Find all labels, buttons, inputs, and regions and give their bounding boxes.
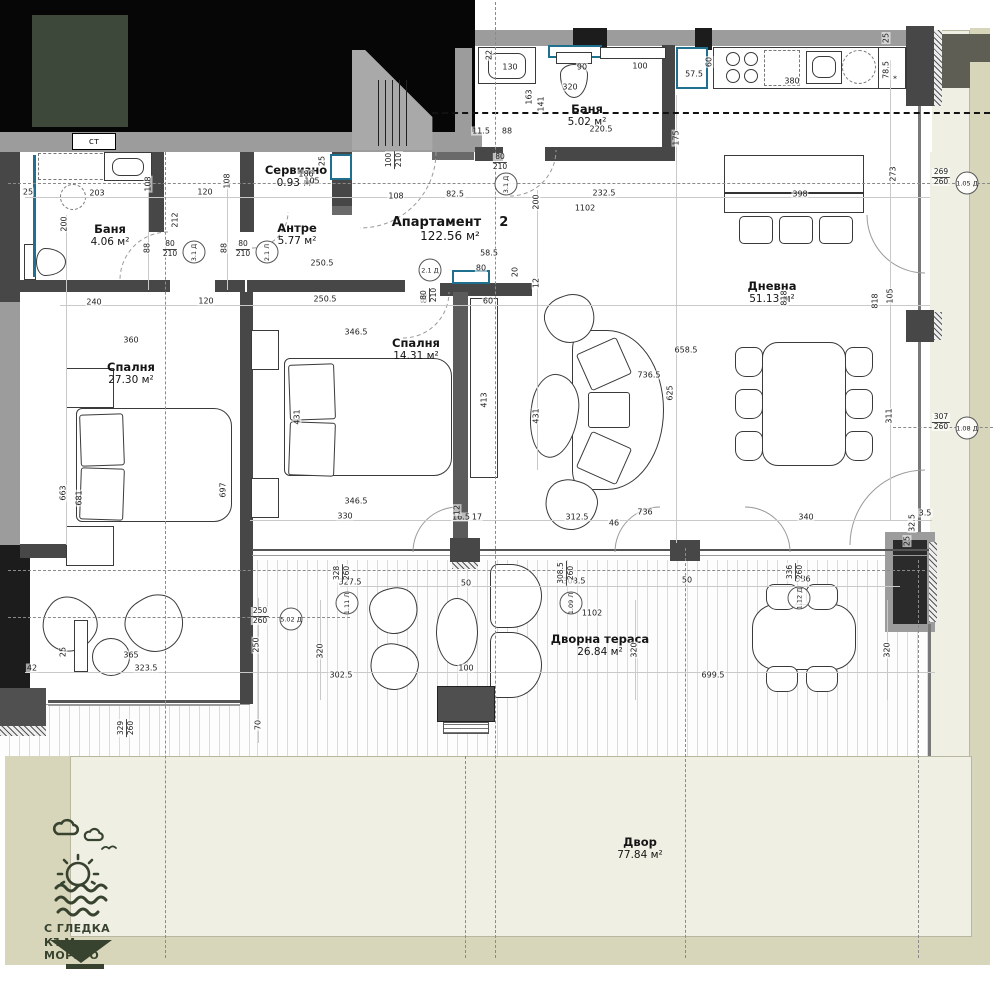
dimension-346.5: 346.5 (344, 497, 369, 506)
dimension-818: 818 (871, 292, 880, 309)
dimension-311: 311 (885, 407, 894, 424)
chair (845, 431, 873, 461)
dimension-141: 141 (537, 95, 546, 112)
dimension-25: 25 (882, 32, 891, 44)
dimension-line (25, 672, 935, 673)
dimension-320: 320 (630, 641, 639, 658)
room-area: 27.30 м² (107, 374, 155, 387)
dimension-323.5: 323.5 (134, 664, 159, 673)
dimension-818: 818 (780, 289, 789, 306)
dimension-200: 200 (60, 215, 69, 232)
hob-burner (744, 69, 758, 83)
pillow (79, 413, 125, 467)
door-marker-3.1Д: 3.1 Д (183, 241, 206, 264)
yard-step (938, 34, 990, 62)
room-label-bed-1: Спалня27.30 м² (107, 360, 155, 387)
stack-bottom: 260 (934, 423, 948, 432)
door-marker-text: 5.02 Д (280, 615, 302, 623)
stairs-icon (378, 80, 410, 146)
stack-bottom: 260 (934, 178, 948, 187)
dimension-681: 681 (75, 489, 84, 506)
dimension-232.5: 232.5 (592, 189, 617, 198)
shaft-label: ст (72, 133, 116, 150)
dimension-90: 90 (576, 63, 588, 72)
dimension-3.5: 3.5 (918, 509, 933, 518)
dimension-70: 70 (254, 719, 263, 731)
insulation-hatch (0, 726, 46, 736)
dimension-220.5: 220.5 (589, 125, 614, 134)
washing-machine (676, 47, 708, 89)
stack-bottom: 260 (567, 566, 576, 580)
terrace-column (450, 538, 480, 562)
bbq (437, 686, 495, 722)
stack-308.5-260: 308.5260 (557, 560, 575, 585)
shelf (600, 47, 666, 59)
room-name: Двор (617, 835, 663, 849)
chair (735, 347, 763, 377)
door-marker-1.05Д: 1.05 Д (956, 172, 979, 195)
dimension-320: 320 (561, 83, 578, 92)
dimension-431: 431 (293, 408, 302, 425)
dimension-120: 120 (197, 297, 214, 306)
dimension-46: 46 (608, 519, 620, 528)
terrace-glazing (252, 549, 930, 551)
dimension-105: 105 (886, 287, 895, 304)
room-label-unit: Апартамент 2122.56 м² (392, 216, 509, 243)
dimension-78.5: 78.5 (882, 60, 891, 80)
door-marker-1.12Д: 1.12 Д (788, 587, 811, 610)
door-marker-text: 1.11 Л (343, 592, 351, 613)
dimension-413: 413 (480, 391, 489, 408)
dimension-250.5: 250.5 (310, 259, 335, 268)
axis-line (495, 2, 496, 958)
service-wall (240, 152, 254, 232)
terrace-dining-table (752, 604, 856, 670)
dimension-736.5: 736.5 (637, 371, 662, 380)
dimension-88: 88 (501, 127, 513, 136)
dimension-57.5: 57.5 (684, 70, 704, 79)
room-name: Спалня (392, 336, 440, 350)
stack-100-210: 100210 (385, 151, 403, 169)
room-area: 14.31 м² (392, 350, 440, 363)
dimension-11.5: 11.5 (471, 127, 491, 136)
window-glazing (918, 106, 921, 312)
door-marker-text: 1.12 Д (795, 587, 803, 609)
dimension-1102: 1102 (574, 204, 596, 213)
dimension-340: 340 (797, 513, 814, 522)
shelf (74, 620, 88, 672)
dimension-50: 50 (681, 576, 693, 585)
door-marker-text: 1.08 Д (956, 424, 978, 432)
bath-counter (38, 153, 108, 180)
room-name: Антре (277, 221, 317, 235)
logo-text-line1: С ГЛЕДКА (36, 922, 132, 936)
chair (735, 389, 763, 419)
terrace-glazing (252, 555, 930, 556)
dimension-625: 625 (666, 384, 675, 401)
door-marker-text: 2.1 Д (421, 266, 438, 274)
dimension-431: 431 (532, 407, 541, 424)
dimension-60: 60 (705, 56, 714, 68)
dimension-380: 380 (783, 77, 800, 86)
dimension-line (537, 190, 538, 470)
floor-plan: ст Баня4.06 м²Сервизно0.93 м²Антре5.77 м… (0, 0, 1000, 1000)
hob-burner (726, 52, 740, 66)
door-marker-3.1Д: 3.1 Д (495, 173, 518, 196)
dimension-108: 108 (387, 192, 404, 201)
dimension-32.5: 32.5 (908, 513, 917, 533)
chair (735, 431, 763, 461)
sofa-cushion (588, 392, 630, 428)
dimension-736: 736 (636, 508, 653, 517)
left-wall (0, 152, 20, 302)
stack-bottom: 260 (253, 617, 267, 626)
dimension-*: * (892, 75, 898, 84)
dimension-58.5: 58.5 (479, 249, 499, 258)
door-marker-text: 1.05 Д (956, 179, 978, 187)
dimension-108: 108 (223, 172, 232, 189)
dimension-25: 25 (318, 155, 327, 167)
stack-bottom: 210 (395, 153, 404, 167)
dimension-60: 60 (482, 297, 494, 306)
bedroom1-window (48, 700, 240, 703)
pillow (288, 421, 336, 477)
bar-stool (779, 216, 813, 244)
stack-80-210: 80210 (493, 153, 507, 171)
service-threshold (332, 206, 352, 215)
dimension-25: 25 (59, 646, 68, 658)
dimension-80: 80 (475, 264, 487, 273)
chair (845, 347, 873, 377)
yard-border-right (970, 28, 990, 956)
cover-rectangle (32, 15, 128, 127)
left-wall (0, 302, 20, 545)
corner-column (906, 26, 934, 106)
door-marker-1.11Л: 1.11 Л (336, 592, 359, 615)
door-marker-1.08Д: 1.08 Д (956, 417, 979, 440)
room-area: 77.84 м² (617, 849, 663, 862)
logo-arrow-icon (50, 940, 112, 963)
dimension-105: 105 (303, 177, 320, 186)
dimension-12: 12 (532, 277, 541, 289)
dimension-12: 12 (453, 504, 462, 516)
yard-bottom (70, 756, 972, 937)
stack-336-260: 336260 (786, 563, 804, 581)
door-marker-2.1Д: 2.1 Д (419, 259, 442, 282)
dimension-658.5: 658.5 (674, 346, 699, 355)
door-marker-text: 3.1 Д (502, 175, 510, 192)
room-label-yard: Двор77.84 м² (617, 835, 663, 862)
dimension-108: 108 (144, 175, 153, 192)
room-label-living: Дневна51.13 м² (748, 279, 797, 306)
dimension-203: 203 (88, 189, 105, 198)
stack-bottom: 260 (127, 721, 136, 735)
room-name: Баня (568, 102, 607, 116)
kitchen-island (724, 155, 864, 213)
dimension-42: 42 (26, 664, 38, 673)
door-marker-5.02Д: 5.02 Д (280, 608, 303, 631)
room-area: 122.56 м² (392, 230, 509, 243)
bath2-bottom-wall (545, 147, 675, 161)
hall-wall (215, 280, 245, 292)
dimension-663: 663 (59, 484, 68, 501)
insulation-hatch (934, 30, 942, 106)
dimension-346.5: 346.5 (344, 328, 369, 337)
dimension-120: 120 (196, 188, 213, 197)
dimension-699.5: 699.5 (701, 671, 726, 680)
bbq-steps (443, 722, 489, 734)
dimension-250.5: 250.5 (313, 295, 338, 304)
dimension-1102: 1102 (581, 609, 603, 618)
dimension-240: 240 (85, 298, 102, 307)
hob-burner (726, 69, 740, 83)
room-area: 4.06 м² (91, 236, 130, 249)
axis-line (465, 756, 466, 958)
dimension-320: 320 (316, 642, 325, 659)
stack-80-210: 80210 (163, 240, 177, 258)
axis-line (685, 548, 686, 958)
insulation-hatch (934, 312, 942, 340)
dimension-365: 365 (122, 651, 139, 660)
left-wall (0, 545, 30, 703)
dimension-line (227, 180, 228, 290)
chair (806, 666, 838, 692)
shower-glass (33, 155, 36, 277)
dimension-130: 130 (501, 63, 518, 72)
dimension-273: 273 (889, 165, 898, 182)
dimension-88: 88 (220, 242, 229, 254)
yard-step (938, 62, 970, 88)
tv-cabinet (470, 298, 498, 478)
stack-250-260: 250260 (251, 607, 269, 625)
axis-line (918, 560, 919, 958)
chair (806, 584, 838, 610)
dimension-360: 360 (122, 336, 139, 345)
terrace-table (436, 598, 478, 666)
dimension-22: 22 (485, 49, 494, 61)
section-line (432, 112, 990, 114)
dimension-line (340, 586, 900, 587)
dimension-330: 330 (336, 512, 353, 521)
logo-icon (44, 818, 124, 922)
wall-column (906, 310, 934, 342)
pillow (79, 467, 125, 521)
dimension-100: 100 (457, 664, 474, 673)
stack-269-260: 269260 (932, 168, 950, 186)
bedroom1-window (48, 705, 240, 706)
stack-bottom: 260 (343, 566, 352, 580)
bar-stool (739, 216, 773, 244)
logo-arrow-base (66, 964, 104, 969)
dimension-line (676, 95, 677, 543)
dimension-25: 25 (903, 535, 912, 547)
sink (330, 154, 352, 180)
door-marker-2.1Л: 2.1 Л (256, 241, 279, 264)
axis-line (165, 152, 166, 958)
stack-80-210: 80210 (420, 288, 438, 302)
sink-basin (812, 56, 836, 78)
dimension-50: 50 (460, 579, 472, 588)
room-label-entry: Антре5.77 м² (277, 221, 317, 248)
dimension-17: 17 (471, 513, 483, 522)
dimension-200: 200 (532, 193, 541, 210)
terrace-column (0, 688, 46, 726)
dimension-163: 163 (525, 88, 534, 105)
door-marker-text: 3.1 Д (190, 243, 198, 260)
stack-bottom: 210 (236, 250, 250, 259)
bar-stool (819, 216, 853, 244)
dimension-100: 100 (631, 62, 648, 71)
dimension-20: 20 (511, 266, 520, 278)
room-label-bath-1: Баня4.06 м² (91, 222, 130, 249)
dimension-320: 320 (883, 641, 892, 658)
bedroom1-wall (20, 544, 68, 558)
dimension-line (148, 180, 149, 290)
dimension-88: 88 (143, 242, 152, 254)
room-area: 51.13 м² (748, 293, 797, 306)
stack-bottom: 210 (430, 288, 439, 302)
stack-bottom: 210 (493, 163, 507, 172)
dimension-25: 25 (22, 188, 34, 197)
stack-bottom: 210 (163, 250, 177, 259)
corner-column (893, 540, 927, 624)
insulation-hatch (929, 542, 937, 622)
stack-80-210: 80210 (236, 240, 250, 258)
nightstand (251, 330, 279, 370)
room-label-bed-2: Спалня14.31 м² (392, 336, 440, 363)
chair (845, 389, 873, 419)
insulation-hatch (452, 562, 478, 569)
nightstand (251, 478, 279, 518)
dining-table (762, 342, 846, 466)
dimension-697: 697 (219, 481, 228, 498)
room-name: Баня (91, 222, 130, 236)
door-marker-text: 2.1 Л (263, 243, 271, 260)
room-area: 5.77 м² (277, 235, 317, 248)
nightstand (66, 526, 114, 566)
dimension-250: 250 (252, 636, 261, 653)
room-name: Дневна (748, 279, 797, 293)
door-marker-1.09Л: 1.09 Л (560, 592, 583, 615)
terrace-edge (928, 624, 931, 756)
room-name: Спалня (107, 360, 155, 374)
dimension-82.5: 82.5 (445, 190, 465, 199)
yard-right (926, 30, 970, 756)
dimension-398: 398 (791, 190, 808, 199)
dimension-175: 175 (672, 129, 681, 146)
dimension-312.5: 312.5 (565, 513, 590, 522)
bedroom2-top-wall (247, 280, 405, 292)
hob-burner (744, 52, 758, 66)
stack-328-260: 328260 (333, 564, 351, 582)
stack-307-260: 307260 (932, 413, 950, 431)
chair (766, 666, 798, 692)
dimension-212: 212 (171, 211, 180, 228)
room-name: Апартамент 2 (392, 216, 509, 230)
stack-bottom: 260 (796, 565, 805, 579)
round-basin (842, 50, 876, 84)
stack-329-260: 329260 (117, 719, 135, 737)
dimension-302.5: 302.5 (329, 671, 354, 680)
door-marker-text: 1.09 Л (567, 592, 575, 613)
sink-basin (112, 158, 144, 176)
